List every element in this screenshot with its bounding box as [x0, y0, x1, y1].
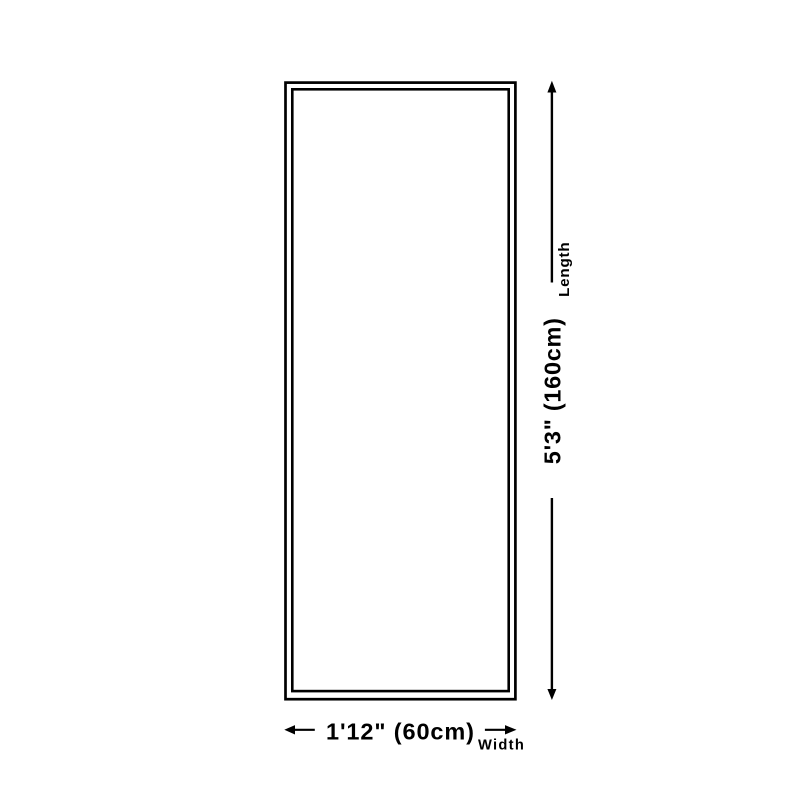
- svg-text:1'12" (60cm): 1'12" (60cm): [326, 719, 474, 745]
- svg-text:Length: Length: [556, 242, 573, 297]
- svg-text:5'3" (160cm): 5'3" (160cm): [540, 318, 566, 464]
- svg-text:Width: Width: [478, 737, 524, 753]
